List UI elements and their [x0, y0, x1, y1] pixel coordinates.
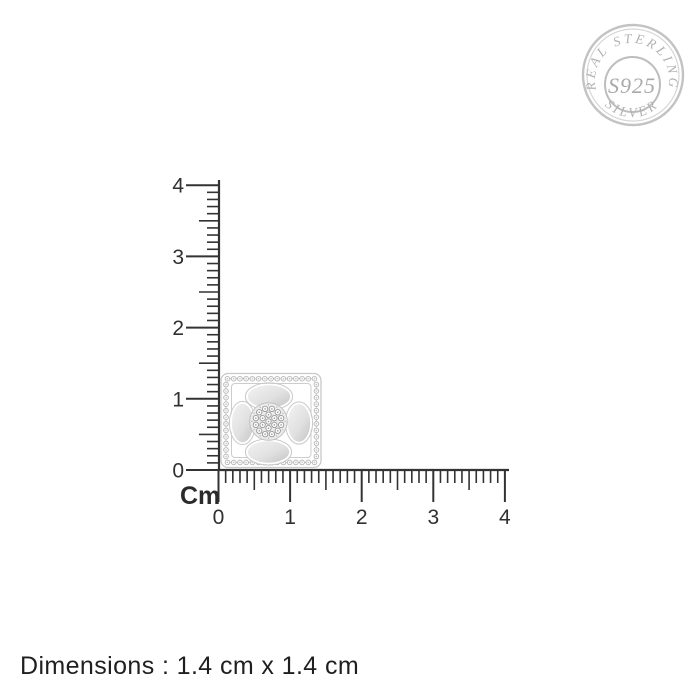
product-measurement-image: REAL STERLING SILVER S925 01234 01234 Cm	[0, 0, 700, 700]
crystal-dot	[268, 428, 270, 430]
speck	[254, 413, 255, 414]
crystal-dot	[233, 378, 234, 379]
crystal-dot	[225, 443, 226, 444]
vertical-ruler-label: 4	[172, 175, 184, 198]
speck	[316, 426, 317, 427]
crystal-dot	[264, 378, 265, 379]
crystal-dot	[225, 410, 226, 411]
horizontal-ruler-label: 4	[499, 506, 511, 529]
crystal-dot	[301, 378, 302, 379]
vertical-ruler-label: 3	[172, 246, 184, 269]
speck	[225, 420, 226, 421]
crystal-dot	[316, 456, 317, 457]
crystal-dot	[316, 436, 317, 437]
horizontal-ruler: 01234	[213, 470, 511, 529]
crystal-dot	[316, 410, 317, 411]
speck	[276, 407, 277, 408]
speck	[316, 433, 317, 434]
crystal-dot	[255, 424, 257, 426]
crystal-dot	[268, 414, 270, 416]
speck	[251, 421, 252, 422]
speck	[225, 394, 226, 395]
speck	[268, 404, 269, 405]
speck	[316, 400, 317, 401]
crystal-dot	[274, 424, 276, 426]
horizontal-ruler-label: 2	[356, 506, 368, 529]
crystal-dot	[280, 424, 282, 426]
crystal-dot	[295, 378, 296, 379]
scene-svg: REAL STERLING SILVER S925 01234 01234 Cm	[0, 0, 700, 700]
crystal-dot	[225, 384, 226, 385]
crystal-dot	[316, 449, 317, 450]
dimensions-caption: Dimensions : 1.4 cm x 1.4 cm	[20, 652, 359, 681]
crystal-dot	[225, 423, 226, 424]
crystal-dot	[316, 430, 317, 431]
speck	[225, 426, 226, 427]
crystal-dot	[271, 433, 273, 435]
crystal-dot	[258, 430, 260, 432]
horizontal-ruler-label: 1	[284, 506, 296, 529]
speck	[316, 420, 317, 421]
crystal-dot	[225, 390, 226, 391]
speck	[282, 429, 283, 430]
crystal-dot	[239, 462, 240, 463]
crystal-dot	[316, 390, 317, 391]
crystal-dot	[225, 436, 226, 437]
crystal-dot	[277, 411, 279, 413]
product-image-flower-pendant	[221, 374, 321, 468]
crystal-dot	[264, 433, 266, 435]
speck	[225, 453, 226, 454]
crystal-dot	[283, 378, 284, 379]
crystal-dot	[274, 417, 276, 419]
crystal-dot	[308, 462, 309, 463]
crystal-dot	[308, 378, 309, 379]
crystal-dot	[255, 417, 257, 419]
speck	[316, 387, 317, 388]
petal-bottom	[247, 441, 290, 464]
crystal-dot	[316, 404, 317, 405]
crystal-dot	[233, 462, 234, 463]
crystal-dot	[246, 378, 247, 379]
badge-center-text: S925	[608, 73, 656, 98]
crystal-dot	[277, 378, 278, 379]
speck	[260, 435, 261, 436]
speck	[225, 400, 226, 401]
speck	[285, 421, 286, 422]
crystal-dot	[252, 378, 253, 379]
crystal-dot	[271, 408, 273, 410]
crystal-dot	[268, 421, 270, 423]
speck	[225, 446, 226, 447]
crystal-dot	[316, 423, 317, 424]
speck	[260, 407, 261, 408]
crystal-dot	[225, 430, 226, 431]
crystal-dot	[314, 378, 315, 379]
horizontal-ruler-label: 3	[427, 506, 439, 529]
speck	[225, 407, 226, 408]
crystal-dot	[295, 462, 296, 463]
speck	[225, 433, 226, 434]
crystal-dot	[316, 443, 317, 444]
petal-right	[287, 404, 311, 443]
crystal-dot	[314, 462, 315, 463]
crystal-dot	[258, 378, 259, 379]
crystal-dot	[225, 404, 226, 405]
speck	[316, 413, 317, 414]
crystal-dot	[225, 397, 226, 398]
crystal-dot	[227, 378, 228, 379]
vertical-ruler: 01234	[172, 175, 219, 483]
crystal-dot	[316, 384, 317, 385]
speck	[254, 429, 255, 430]
ruler-unit-label: Cm	[180, 482, 220, 510]
crystal-dot	[316, 397, 317, 398]
speck	[316, 407, 317, 408]
speck	[225, 387, 226, 388]
crystal-dot	[262, 417, 264, 419]
speck	[316, 446, 317, 447]
speck	[316, 440, 317, 441]
crystal-dot	[246, 462, 247, 463]
crystal-dot	[280, 417, 282, 419]
crystal-dot	[225, 417, 226, 418]
speck	[225, 440, 226, 441]
crystal-dot	[264, 408, 266, 410]
vertical-ruler-label: 1	[172, 388, 184, 411]
vertical-ruler-label: 0	[172, 460, 184, 483]
crystal-dot	[289, 378, 290, 379]
crystal-dot	[227, 462, 228, 463]
speck	[225, 413, 226, 414]
sterling-silver-badge: REAL STERLING SILVER S925	[583, 25, 683, 125]
crystal-dot	[225, 449, 226, 450]
crystal-dot	[270, 378, 271, 379]
speck	[268, 438, 269, 439]
crystal-dot	[258, 411, 260, 413]
vertical-ruler-label: 2	[172, 317, 184, 340]
speck	[316, 394, 317, 395]
speck	[316, 453, 317, 454]
crystal-dot	[277, 430, 279, 432]
speck	[282, 413, 283, 414]
crystal-dot	[225, 456, 226, 457]
crystal-dot	[301, 462, 302, 463]
speck	[276, 435, 277, 436]
crystal-dot	[262, 424, 264, 426]
crystal-dot	[289, 462, 290, 463]
crystal-dot	[239, 378, 240, 379]
crystal-dot	[316, 417, 317, 418]
